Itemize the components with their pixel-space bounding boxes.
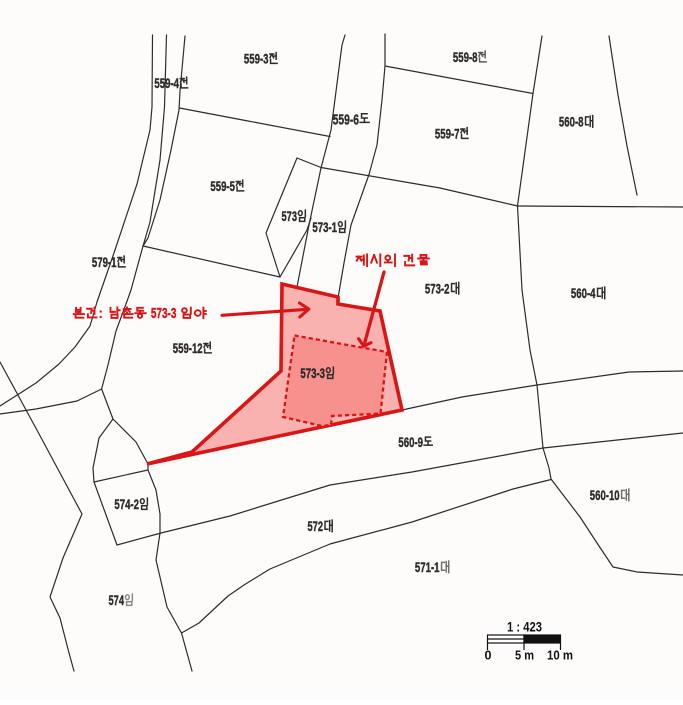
svg-text:559-5: 559-5 — [210, 178, 235, 194]
svg-text:572: 572 — [308, 518, 324, 534]
svg-text:579-1: 579-1 — [92, 254, 117, 270]
svg-text:559-4: 559-4 — [154, 75, 179, 91]
svg-text:574: 574 — [109, 592, 125, 608]
svg-text:560-9: 560-9 — [398, 434, 423, 450]
svg-text:573-1: 573-1 — [312, 219, 337, 235]
svg-text:573: 573 — [282, 208, 298, 224]
svg-text:1 : 423: 1 : 423 — [507, 619, 542, 635]
svg-text:559-7: 559-7 — [435, 126, 460, 142]
svg-text:560-10: 560-10 — [590, 487, 620, 503]
svg-text:559-12: 559-12 — [173, 340, 203, 356]
svg-text:10 m: 10 m — [547, 649, 573, 663]
svg-text:0: 0 — [485, 649, 492, 663]
svg-text:573-3: 573-3 — [300, 365, 325, 381]
svg-text:559-6: 559-6 — [333, 111, 359, 128]
svg-text:560-4: 560-4 — [571, 285, 596, 301]
svg-text:573-3: 573-3 — [151, 306, 177, 322]
svg-text:559-8: 559-8 — [453, 49, 478, 65]
svg-text:559-3: 559-3 — [244, 51, 269, 67]
svg-text:573-2: 573-2 — [425, 280, 450, 296]
svg-text:560-8: 560-8 — [559, 114, 584, 130]
svg-text:571-1: 571-1 — [415, 559, 440, 575]
svg-text:5 m: 5 m — [515, 649, 534, 663]
svg-text::: : — [98, 306, 103, 322]
svg-text:574-2: 574-2 — [114, 496, 139, 512]
